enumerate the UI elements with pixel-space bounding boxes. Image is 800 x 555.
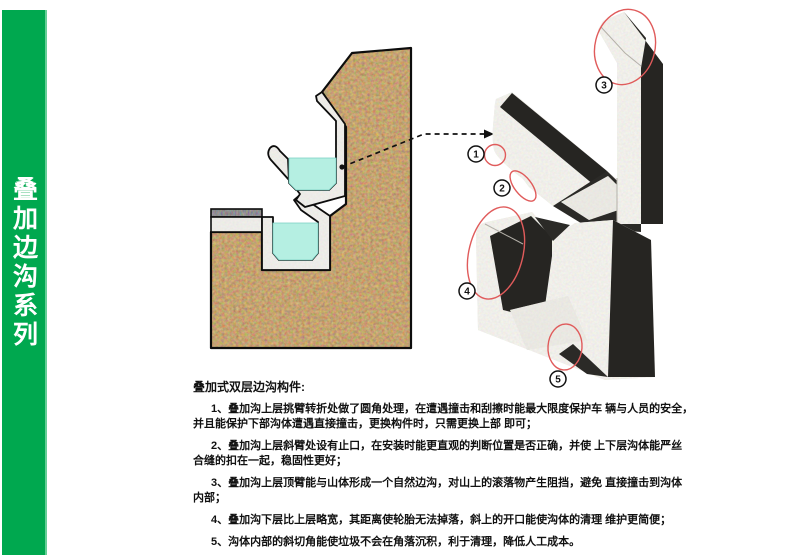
description-line: 2、叠加沟上层斜臂处设有止口，在安装时能更直观的判断位置是否正确，并使 上下层沟… [193,439,778,454]
callout-1: 1 [473,150,479,161]
series-sidebar: 叠加边沟系列 [2,10,47,555]
callout-4: 4 [464,287,470,298]
callout-3: 3 [601,81,607,92]
description-line: 3、叠加沟上层顶臂能与山体形成一个自然边沟，对山上的滚落物产生阻挡，避免 直接撞… [193,476,778,491]
gutter-3d-svg: 1 2 3 4 5 [455,8,667,392]
lower-water [273,223,318,260]
catalog-page: { "sidebar": { "title": "叠加边沟系列", "bg_co… [0,0,800,555]
description-point-1: 1、叠加沟上层挑臂转折处做了圆角处理，在遭遇撞击和刮擦时能最大限度保护车 辆与人… [193,402,778,432]
description-line: 并且能保护下部沟体遭遇直接撞击，更换构件时，只需更换上部 即可； [193,417,778,432]
callout-2: 2 [499,184,505,195]
description-point-3: 3、叠加沟上层顶臂能与山体形成一个自然边沟，对山上的滚落物产生阻挡，避免 直接撞… [193,476,778,506]
cross-section-drawing [205,8,415,353]
description-line: 1、叠加沟上层挑臂转折处做了圆角处理，在遭遇撞击和刮擦时能最大限度保护车 辆与人… [193,402,778,417]
component-description: 叠加式双层边沟构件: 1、叠加沟上层挑臂转折处做了圆角处理，在遭遇撞击和刮擦时能… [193,380,778,550]
description-point-4: 4、叠加沟下层比上层略宽，其距离使轮胎无法掉落，斜上的开口能使沟体的清理 维护更… [193,513,778,528]
road-pavement [211,209,262,217]
description-points: 1、叠加沟上层挑臂转折处做了圆角处理，在遭遇撞击和刮擦时能最大限度保护车 辆与人… [193,402,778,550]
description-point-2: 2、叠加沟上层斜臂处设有止口，在安装时能更直观的判断位置是否正确，并使 上下层沟… [193,439,778,469]
description-line: 内部； [193,491,778,506]
lower-gutter-section [262,194,330,270]
upper-component [493,12,663,232]
concrete-apron [211,217,262,232]
description-line: 4、叠加沟下层比上层略宽，其距离使轮胎无法掉落，斜上的开口能使沟体的清理 维护更… [193,513,778,528]
description-line: 合缝的扣在一起，稳固性更好； [193,454,778,469]
upper-water [289,158,336,190]
gutter-3d-render: 1 2 3 4 5 [455,8,667,392]
description-point-5: 5、沟体内部的斜切角能使垃圾不会在角落沉积，利于清理，降低人工成本。 [193,535,778,550]
lower-component [476,212,655,380]
description-line: 5、沟体内部的斜切角能使垃圾不会在角落沉积，利于清理，降低人工成本。 [193,535,778,550]
cross-section-photo [205,8,415,353]
description-title: 叠加式双层边沟构件: [193,380,778,395]
series-title: 叠加边沟系列 [6,176,42,350]
